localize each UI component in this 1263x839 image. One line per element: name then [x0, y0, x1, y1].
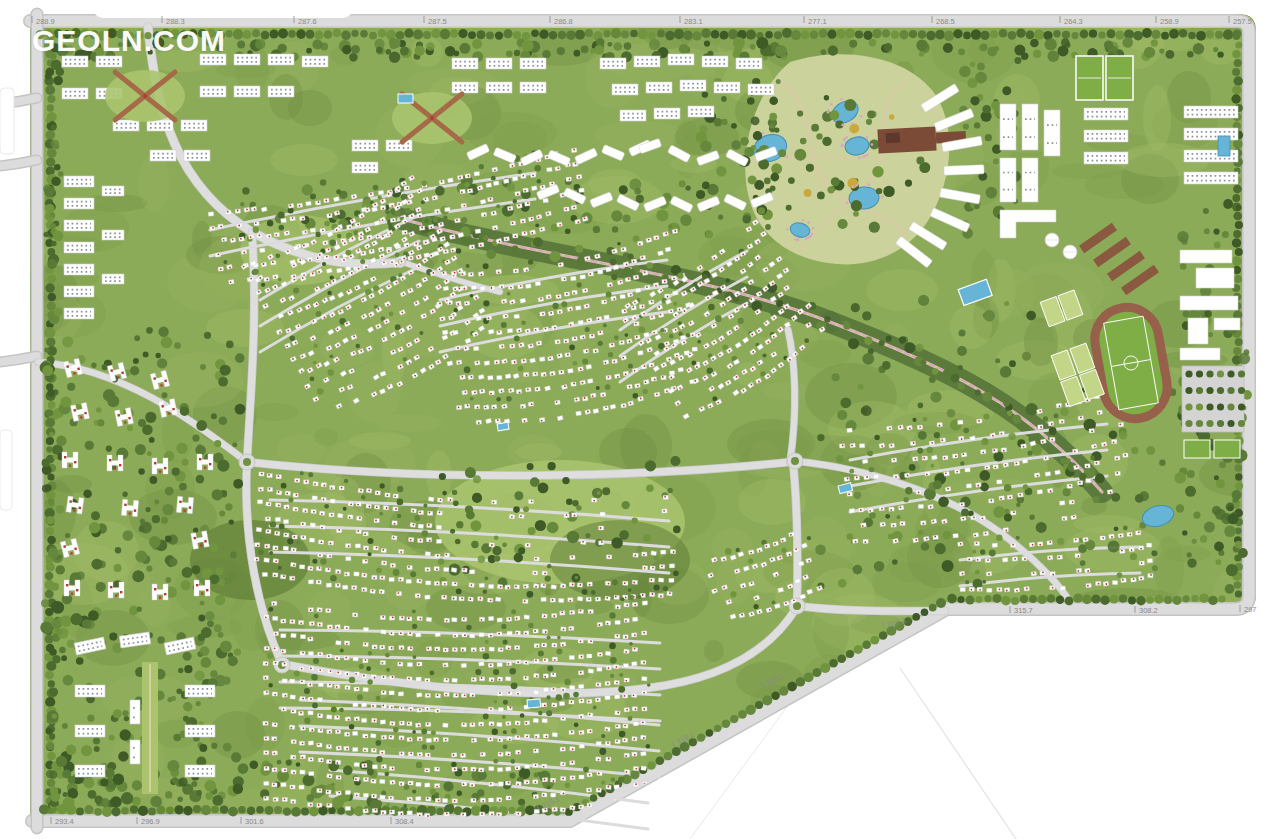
svg-text:258.9: 258.9	[1160, 17, 1179, 26]
svg-text:257.5: 257.5	[1233, 17, 1252, 26]
svg-text:264.3: 264.3	[1064, 17, 1083, 26]
svg-text:287.5: 287.5	[428, 17, 447, 26]
svg-text:268.5: 268.5	[936, 17, 955, 26]
svg-text:287.6: 287.6	[298, 17, 317, 26]
watermark: GEOLN.COM	[32, 24, 226, 58]
svg-text:308.2: 308.2	[1139, 606, 1158, 615]
svg-text:315.7: 315.7	[1014, 606, 1033, 615]
svg-text:308.4: 308.4	[395, 817, 414, 826]
svg-text:301.6: 301.6	[245, 817, 264, 826]
svg-text:296.9: 296.9	[141, 817, 160, 826]
svg-text:297: 297	[1244, 605, 1257, 614]
svg-text:277.1: 277.1	[808, 17, 827, 26]
site-plan-svg: 288.9288.3287.6287.5286.8283.1277.1268.5…	[0, 0, 1263, 839]
svg-text:286.8: 286.8	[554, 17, 573, 26]
svg-text:293.4: 293.4	[55, 817, 74, 826]
svg-text:283.1: 283.1	[684, 17, 703, 26]
master-plan-map: 288.9288.3287.6287.5286.8283.1277.1268.5…	[0, 0, 1263, 839]
top-left-panel	[93, 0, 353, 18]
